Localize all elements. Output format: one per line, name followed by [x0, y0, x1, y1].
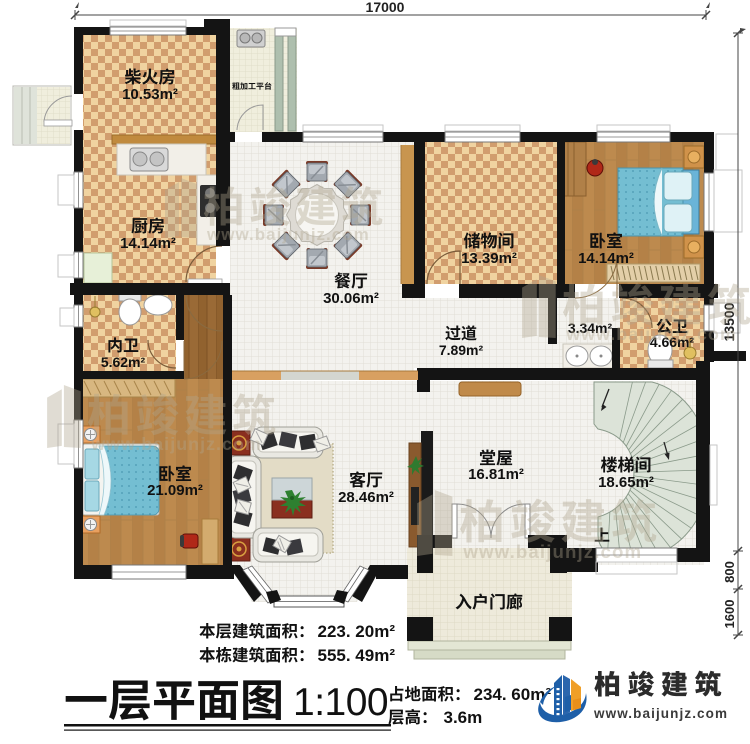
svg-text:223. 20m²: 223. 20m²: [318, 622, 396, 641]
svg-text:14.14m²: 14.14m²: [578, 250, 634, 267]
svg-text:21.09m²: 21.09m²: [147, 482, 203, 499]
svg-text:www.baijunjz.com: www.baijunjz.com: [206, 225, 370, 244]
svg-text:13.39m²: 13.39m²: [461, 250, 517, 267]
svg-text:www.baijunjz.com: www.baijunjz.com: [90, 434, 262, 454]
svg-text:7.89m²: 7.89m²: [439, 342, 484, 358]
svg-text:www.baijunjz.com: www.baijunjz.com: [462, 541, 642, 562]
svg-text:555. 49m²: 555. 49m²: [318, 646, 396, 665]
svg-text:30.06m²: 30.06m²: [323, 290, 379, 307]
svg-text:17000: 17000: [366, 0, 405, 15]
svg-text:www.baijunjz.com: www.baijunjz.com: [593, 706, 728, 721]
svg-text:3.6m: 3.6m: [444, 708, 483, 727]
svg-text:234. 60m²: 234. 60m²: [474, 685, 552, 704]
svg-text:1:100: 1:100: [293, 681, 388, 724]
svg-text:5.62m²: 5.62m²: [101, 354, 146, 370]
svg-text:www.baijunjz.com: www.baijunjz.com: [565, 324, 737, 344]
svg-text:16.81m²: 16.81m²: [468, 466, 524, 483]
svg-text:1600: 1600: [722, 600, 737, 629]
svg-text:800: 800: [722, 561, 737, 583]
svg-text:10.53m²: 10.53m²: [122, 86, 178, 103]
svg-text:28.46m²: 28.46m²: [338, 489, 394, 506]
svg-text:18.65m²: 18.65m²: [598, 474, 654, 491]
